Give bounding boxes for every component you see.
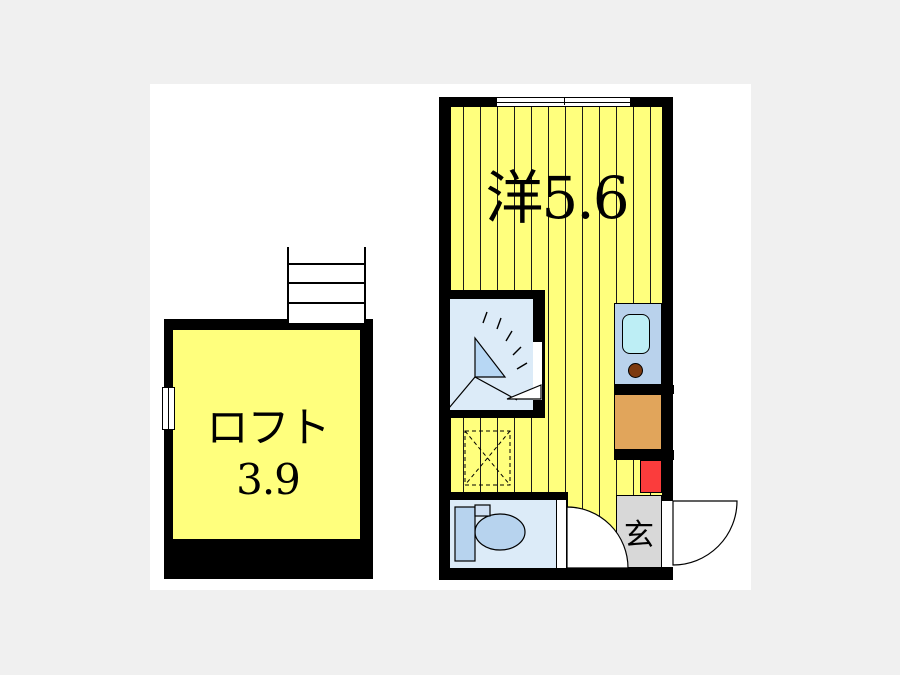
- kitchen-sink-icon: [622, 314, 650, 354]
- toilet-room-floor: [450, 500, 556, 568]
- stairs-icon: [287, 247, 366, 325]
- wall-divider: [614, 450, 674, 460]
- floorplan-page: ロフト3.9 洋5.6 玄: [0, 0, 900, 675]
- entrance-door-gap: [662, 501, 673, 567]
- loft-room-label: ロフト3.9: [176, 402, 360, 454]
- gas-burner-icon: [628, 363, 643, 378]
- stair-step: [289, 263, 364, 265]
- loft-window-icon: [162, 387, 175, 430]
- toilet-door-gap: [556, 500, 567, 568]
- genkan-label: 玄: [624, 510, 654, 554]
- genkan-area: 玄: [616, 495, 662, 568]
- western-room-label: 洋5.6: [451, 164, 662, 232]
- refrigerator-space: [614, 394, 662, 450]
- water-heater: [640, 460, 662, 493]
- stair-step: [289, 282, 364, 284]
- sliding-window-icon: [497, 97, 630, 107]
- wall-divider: [614, 385, 674, 394]
- stair-step: [289, 302, 364, 304]
- bathroom-floor: [450, 299, 533, 410]
- loft-window-divider: [168, 388, 169, 429]
- bathroom-door-gap: [533, 342, 542, 400]
- window-center-tick: [564, 98, 565, 105]
